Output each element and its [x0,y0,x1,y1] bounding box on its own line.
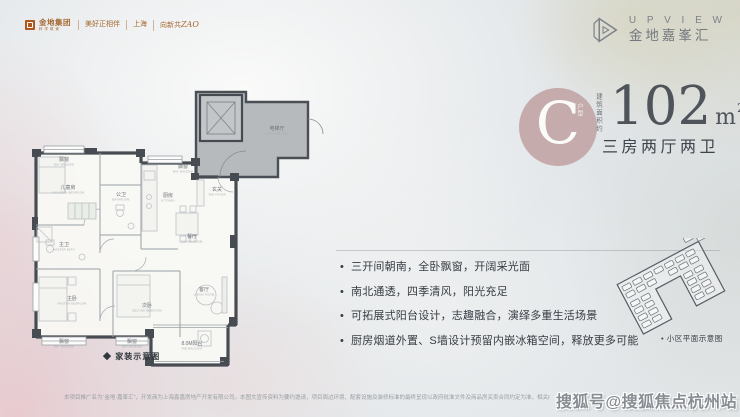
area-value: 102 [610,77,711,138]
room-label-public-bath: 公卫 [116,192,126,198]
room-label-dining-room: 餐厅 [187,233,197,240]
room-label-en-second-bedroom: SECOND BEDROOM [132,309,161,313]
room-label-en-bay-window-kitchen: BAY WINDOW [173,170,193,174]
room-label-master-bath: 主卫 [59,241,69,248]
watermark-text: 搜狐号@搜狐焦点杭州站 [556,388,737,412]
room-label-bay-window-bottom-1: 飘窗 [59,338,69,345]
room-label-bay-window-bottom-2: 飘窗 [127,338,137,345]
project-logo-text: U P V I E W [629,16,726,26]
room-label-en-elevator-hall: ELEVATOR HALL [265,132,290,136]
brand-campaign: 向新共ZAO [153,20,205,31]
room-label-en-bay-window-top: BAY WINDOW [54,163,74,167]
disclaimer-text: 本项目推广名为“金地·嘉峯汇”，开发商为上海鑫嘉房地产开发有限公司。本图文宣传资… [64,393,550,401]
brand-city: 上海 [126,20,153,30]
room-label-elevator-hall: 电梯厅 [269,125,284,132]
room-label-en-bay-window-bottom-2: BAY WINDOW [122,345,142,349]
area-unit: m [715,105,736,130]
siteplan-shape [612,238,732,334]
siteplan-building [683,238,693,243]
room-label-en-foyer: THE FOYER [208,193,226,197]
feature-item: 可拓展式阳台设计，志趣融合，演绎多重生活场景 [340,310,630,322]
project-name: 金地嘉峯汇 [629,30,726,44]
feature-item: 南北通透，四季清风，阳光充足 [340,286,630,298]
features-list: 三开间朝南，全卧飘窗，开阔采光面南北通透，四季清风，阳光充足可拓展式阳台设计，志… [340,261,630,359]
siteplan-caption: • 小区平面示意图 [661,333,723,344]
unit-type-badge: C 户型 [519,88,597,166]
siteplan-building [696,238,706,241]
upview-triangle-icon [587,13,621,47]
feature-item: 三开间朝南，全卧飘窗，开阔采光面 [340,261,630,273]
feature-item: 厨房烟道外置、S墙设计预留内嵌冰箱空间，释放更多可能 [340,335,630,347]
room-label-en-kitchen: KITCHEN [161,199,174,203]
room-label-en-bay-window-bottom-1: BAY WINDOW [54,345,74,349]
room-label-en-living-room: LIVING ROOM [194,293,215,297]
siteplan [600,238,740,342]
floorplan: 飘窗BAY WINDOW儿童房CHILDREN BEDROOM公卫BATHROO… [20,85,325,370]
project-logo: U P V I E W 金地嘉峯汇 [587,13,726,47]
room-label-en-children-bedroom: CHILDREN BEDROOM [52,191,84,195]
unit-type-letter: C [519,84,597,162]
brand-tagline: 美好正相伴 [78,20,126,30]
gemdale-logo-icon [25,20,35,30]
unit-area: 102 m 2 [610,77,740,138]
room-label-bay-window-top: 飘窗 [59,156,69,163]
room-label-foyer: 玄关 [212,186,222,193]
room-label-second-bedroom: 次卧 [142,302,152,309]
brand-sub-slogan: 科学筑家 [39,28,71,32]
floorplan-caption: ◆ 家装示意图 [103,351,160,362]
room-label-master-bedroom: 主卧 [67,295,77,302]
room-label-en-dining-room: DINING ROOM [181,240,202,244]
page: 金地集团 科学筑家 美好正相伴 上海 向新共ZAO U P V I E W 金地… [0,0,740,417]
room-label-children-bedroom: 儿童房 [60,184,75,191]
room-label-en-master-bedroom: MASTER BEDROOM [57,302,86,306]
room-label-en-public-bath: BATHROOM [112,198,129,202]
room-label-bay-window-kitchen: 飘窗 [178,163,188,170]
unit-layout: 三房两厅两卫 [602,133,719,157]
area-label: 建筑面积约 [594,93,601,133]
brand-strip: 金地集团 科学筑家 美好正相伴 上海 向新共ZAO [25,18,205,32]
brand-name: 金地集团 [39,19,71,27]
unit-type-suffix: 户型 [575,103,584,117]
room-label-kitchen: 厨房 [163,192,173,199]
room-label-living-room: 客厅 [199,286,209,293]
room-label-en-master-bath: MASTER BATH [53,248,75,252]
room-label-balcony: 8.0M阳台 [181,340,202,347]
room-label-en-balcony: THE BALCONY [181,347,203,351]
